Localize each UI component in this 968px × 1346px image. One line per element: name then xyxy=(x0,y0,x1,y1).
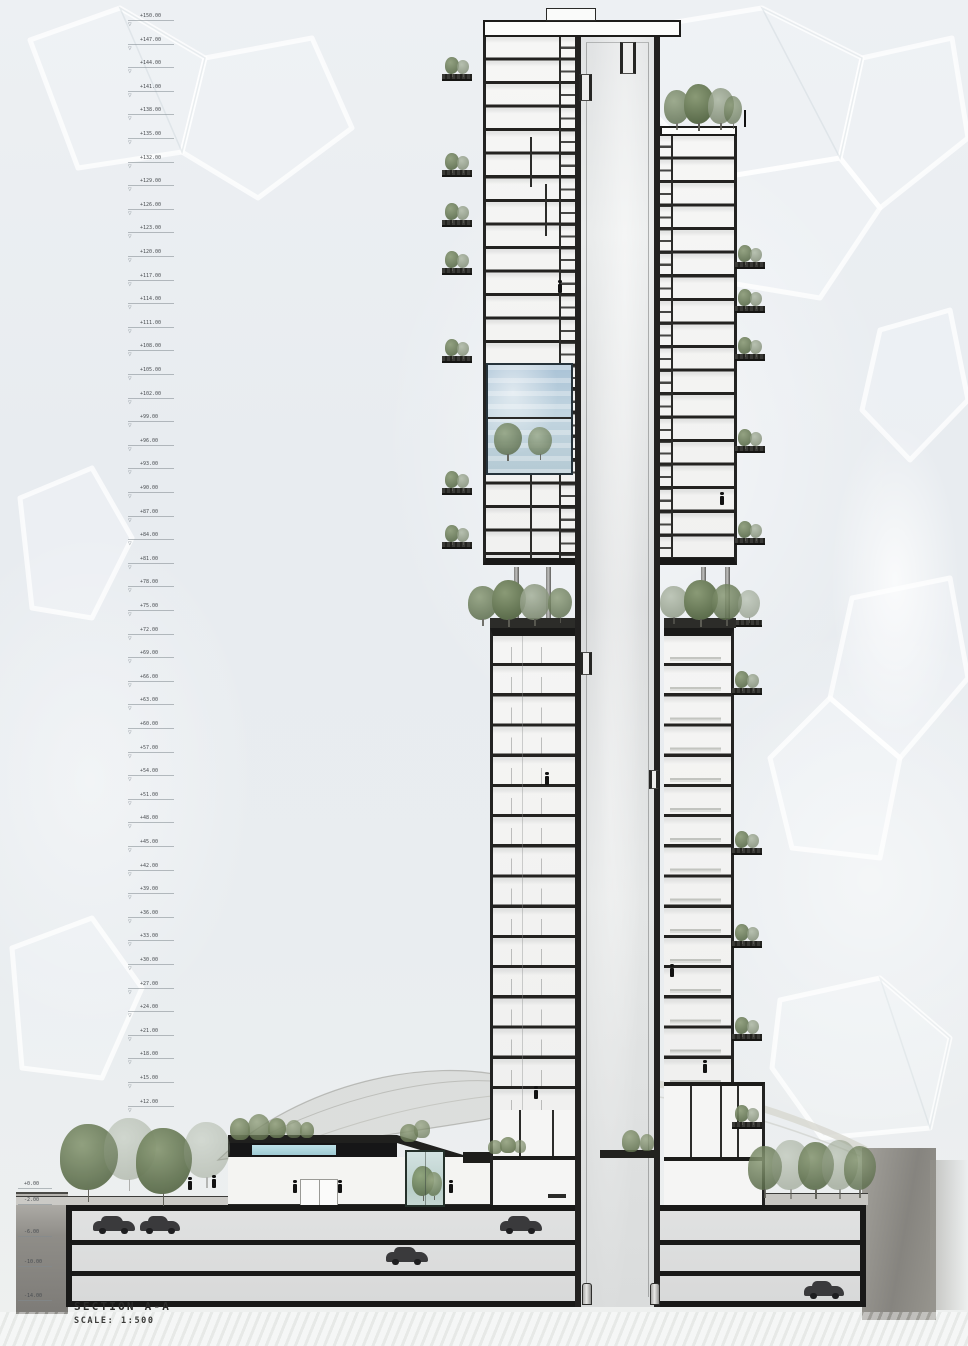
triangle-down-icon: ▽ xyxy=(128,470,132,476)
elevation-label: +123.00 xyxy=(140,226,174,231)
triangle-down-icon: ▽ xyxy=(128,754,132,760)
elevation-label: +33.00 xyxy=(140,934,174,939)
elevation-label: +99.00 xyxy=(140,415,174,420)
datum-leader-line xyxy=(18,1266,52,1267)
person-icon xyxy=(720,496,724,505)
elevation-marker: +12.00▽ xyxy=(128,1100,174,1107)
elevation-label: +48.00 xyxy=(140,816,174,821)
elevation-marker: +75.00▽ xyxy=(128,604,174,611)
datum-label: -6.00 xyxy=(24,1230,52,1235)
elevation-leader-line xyxy=(128,1106,174,1107)
atrium-mullion xyxy=(425,1152,426,1205)
tower-upper-right-wing xyxy=(660,136,737,565)
elevation-label: +87.00 xyxy=(140,510,174,515)
triangle-down-icon: ▽ xyxy=(128,234,132,240)
triangle-down-icon: ▽ xyxy=(128,848,132,854)
elevation-label: +81.00 xyxy=(140,557,174,562)
triangle-down-icon: ▽ xyxy=(128,400,132,406)
triangle-down-icon: ▽ xyxy=(128,612,132,618)
triangle-down-icon: ▽ xyxy=(128,494,132,500)
elevation-leader-line xyxy=(128,539,174,540)
elevator-icon xyxy=(649,770,659,789)
triangle-down-icon: ▽ xyxy=(128,164,132,170)
elevation-label: +78.00 xyxy=(140,580,174,585)
elevation-leader-line xyxy=(128,374,174,375)
elevation-leader-line xyxy=(128,1058,174,1059)
sky-garden-floor-line xyxy=(488,417,571,419)
person-icon xyxy=(212,1179,216,1188)
triangle-down-icon: ▽ xyxy=(128,46,132,52)
elevation-label: +69.00 xyxy=(140,651,174,656)
door-outline-hints xyxy=(541,636,542,1110)
elevation-leader-line xyxy=(128,870,174,871)
elevation-marker: +135.00▽ xyxy=(128,132,174,139)
elevation-leader-line xyxy=(128,917,174,918)
elevation-label: +132.00 xyxy=(140,156,174,161)
elevation-label: +21.00 xyxy=(140,1029,174,1034)
balcony-planter xyxy=(442,542,472,549)
tower-lower-left-block xyxy=(490,628,575,1110)
elevation-marker: +117.00▽ xyxy=(128,274,174,281)
elevation-marker: +84.00▽ xyxy=(128,533,174,540)
roof-antenna xyxy=(744,110,746,127)
elevation-leader-line xyxy=(128,327,174,328)
datum-label: -2.00 xyxy=(24,1198,52,1203)
balcony-planter xyxy=(732,848,762,855)
shrub-icon xyxy=(230,1118,250,1140)
podium-roof-band xyxy=(228,1143,397,1157)
balcony-planter xyxy=(732,1122,762,1129)
elevation-label: +102.00 xyxy=(140,392,174,397)
elevation-label: +150.00 xyxy=(140,14,174,19)
balcony-planter xyxy=(442,488,472,495)
person-icon xyxy=(338,1184,342,1193)
balcony-planter xyxy=(735,262,765,269)
elevation-leader-line xyxy=(128,846,174,847)
drawing-title: SECTION A-A xyxy=(74,1300,171,1313)
elevation-marker: +21.00▽ xyxy=(128,1029,174,1036)
triangle-down-icon: ▽ xyxy=(128,447,132,453)
elevation-label: +15.00 xyxy=(140,1076,174,1081)
elevation-label: +108.00 xyxy=(140,344,174,349)
elevation-marker: +108.00▽ xyxy=(128,344,174,351)
roof-bulkhead xyxy=(546,8,596,21)
triangle-down-icon: ▽ xyxy=(128,683,132,689)
shrub-icon xyxy=(622,1130,640,1152)
datum-leader-line xyxy=(18,1204,52,1205)
elevation-leader-line xyxy=(128,1011,174,1012)
car-icon xyxy=(386,1252,428,1262)
balcony-planter xyxy=(442,356,472,363)
elevation-marker: +24.00▽ xyxy=(128,1005,174,1012)
base-partition xyxy=(690,1086,692,1157)
tower-lower-right-block xyxy=(664,628,734,1082)
block-partition xyxy=(522,636,523,1110)
elevation-leader-line xyxy=(128,20,174,21)
elevation-label: +117.00 xyxy=(140,274,174,279)
shrub-icon xyxy=(300,1122,314,1138)
elevation-label: +147.00 xyxy=(140,38,174,43)
person-icon xyxy=(449,1184,453,1193)
atrium-glass xyxy=(405,1150,445,1207)
elevation-leader-line xyxy=(128,280,174,281)
triangle-down-icon: ▽ xyxy=(128,69,132,75)
base-partition xyxy=(720,1086,722,1157)
elevation-leader-line xyxy=(128,964,174,965)
balcony-planter xyxy=(442,74,472,81)
shrub-icon xyxy=(268,1118,286,1138)
elevation-marker: +129.00▽ xyxy=(128,179,174,186)
balcony-planter xyxy=(735,354,765,361)
triangle-down-icon: ▽ xyxy=(128,22,132,28)
elevation-label: +129.00 xyxy=(140,179,174,184)
furniture-sketch-hints xyxy=(670,636,721,1082)
elevation-leader-line xyxy=(128,752,174,753)
person-icon xyxy=(558,284,562,293)
triangle-down-icon: ▽ xyxy=(128,1013,132,1019)
balcony-planter xyxy=(735,446,765,453)
elevation-leader-line xyxy=(128,563,174,564)
elevation-leader-line xyxy=(128,586,174,587)
elevation-marker: +81.00▽ xyxy=(128,557,174,564)
elevator-icon xyxy=(620,42,636,74)
shrub-icon xyxy=(640,1134,654,1151)
elevation-leader-line xyxy=(128,681,174,682)
elevation-leader-line xyxy=(128,67,174,68)
tower-base-right xyxy=(664,1082,765,1205)
elevator-icon xyxy=(579,74,592,101)
triangle-down-icon: ▽ xyxy=(128,824,132,830)
datum-leader-line xyxy=(18,1300,52,1301)
balcony-planter xyxy=(442,170,472,177)
core-adjacent-shaft-strip xyxy=(660,136,673,558)
balcony-planter xyxy=(442,268,472,275)
elevation-label: +30.00 xyxy=(140,958,174,963)
elevator-icon xyxy=(580,652,592,675)
datum-label: -14.00 xyxy=(24,1294,52,1299)
person-icon xyxy=(545,776,549,785)
datum-leader-line xyxy=(18,1188,52,1189)
elevation-label: +66.00 xyxy=(140,675,174,680)
balcony-planter xyxy=(735,306,765,313)
elevation-marker: +48.00▽ xyxy=(128,816,174,823)
elevation-marker: +126.00▽ xyxy=(128,203,174,210)
elevation-leader-line xyxy=(128,303,174,304)
elevation-label: +12.00 xyxy=(140,1100,174,1105)
architectural-section-canvas: +150.00▽+147.00▽+144.00▽+141.00▽+138.00▽… xyxy=(0,0,968,1346)
elevation-marker: +30.00▽ xyxy=(128,958,174,965)
triangle-down-icon: ▽ xyxy=(128,93,132,99)
core-inner-outline xyxy=(586,42,649,1297)
roof-parapet xyxy=(483,20,681,37)
elevator-buffer xyxy=(650,1283,660,1305)
elevation-marker: +60.00▽ xyxy=(128,722,174,729)
elevation-label: +90.00 xyxy=(140,486,174,491)
elevation-leader-line xyxy=(128,775,174,776)
title-block: SECTION A-A SCALE: 1:500 xyxy=(74,1300,171,1326)
triangle-down-icon: ▽ xyxy=(128,211,132,217)
elevation-marker: +54.00▽ xyxy=(128,769,174,776)
elevation-marker: +141.00▽ xyxy=(128,85,174,92)
triangle-down-icon: ▽ xyxy=(128,730,132,736)
elevation-marker: +66.00▽ xyxy=(128,675,174,682)
elevation-label: +57.00 xyxy=(140,746,174,751)
triangle-down-icon: ▽ xyxy=(128,1060,132,1066)
elevation-leader-line xyxy=(128,209,174,210)
triangle-down-icon: ▽ xyxy=(128,116,132,122)
balcony-planter xyxy=(732,941,762,948)
elevation-marker: +39.00▽ xyxy=(128,887,174,894)
elevation-label: +135.00 xyxy=(140,132,174,137)
elevation-marker: +150.00▽ xyxy=(128,14,174,21)
elevation-label: +114.00 xyxy=(140,297,174,302)
elevation-label: +42.00 xyxy=(140,864,174,869)
elevation-marker: +15.00▽ xyxy=(128,1076,174,1083)
triangle-down-icon: ▽ xyxy=(128,541,132,547)
triangle-down-icon: ▽ xyxy=(128,777,132,783)
door-outline-hints xyxy=(511,636,512,1110)
elevation-marker: +93.00▽ xyxy=(128,462,174,469)
balcony-planter xyxy=(732,1034,762,1041)
triangle-down-icon: ▽ xyxy=(128,423,132,429)
elevation-leader-line xyxy=(128,445,174,446)
datum-marker: -14.00 xyxy=(18,1294,52,1301)
wing-partition xyxy=(545,184,547,236)
triangle-down-icon: ▽ xyxy=(128,872,132,878)
elevation-leader-line xyxy=(128,822,174,823)
elevation-label: +60.00 xyxy=(140,722,174,727)
tower-upper-left-wing xyxy=(483,37,575,565)
elevation-marker: +33.00▽ xyxy=(128,934,174,941)
triangle-down-icon: ▽ xyxy=(128,258,132,264)
elevation-leader-line xyxy=(128,657,174,658)
elevation-marker: +120.00▽ xyxy=(128,250,174,257)
elevation-marker: +96.00▽ xyxy=(128,439,174,446)
elevation-marker: +87.00▽ xyxy=(128,510,174,517)
elevation-marker: +90.00▽ xyxy=(128,486,174,493)
elevation-marker: +123.00▽ xyxy=(128,226,174,233)
podium-pool xyxy=(252,1145,336,1155)
elevation-leader-line xyxy=(128,398,174,399)
elevation-leader-line xyxy=(128,1035,174,1036)
base-slab xyxy=(493,1156,575,1160)
triangle-down-icon: ▽ xyxy=(128,942,132,948)
elevation-label: +138.00 xyxy=(140,108,174,113)
elevation-leader-line xyxy=(128,492,174,493)
shrub-icon xyxy=(514,1140,526,1153)
elevation-marker: +51.00▽ xyxy=(128,793,174,800)
elevation-marker: +57.00▽ xyxy=(128,746,174,753)
elevation-label: +84.00 xyxy=(140,533,174,538)
datum-marker: -10.00 xyxy=(18,1260,52,1267)
elevation-label: +126.00 xyxy=(140,203,174,208)
elevation-marker: +105.00▽ xyxy=(128,368,174,375)
elevation-label: +144.00 xyxy=(140,61,174,66)
elevation-leader-line xyxy=(128,704,174,705)
datum-label: -10.00 xyxy=(24,1260,52,1265)
elevation-leader-line xyxy=(128,610,174,611)
elevation-marker: +102.00▽ xyxy=(128,392,174,399)
elevation-marker: +69.00▽ xyxy=(128,651,174,658)
car-icon xyxy=(804,1286,844,1296)
balcony-planter xyxy=(442,220,472,227)
datum-marker: +0.00 xyxy=(18,1182,52,1189)
elevation-label: +105.00 xyxy=(140,368,174,373)
triangle-down-icon: ▽ xyxy=(128,282,132,288)
person-icon xyxy=(670,968,674,977)
elevation-marker: +63.00▽ xyxy=(128,698,174,705)
elevation-leader-line xyxy=(128,940,174,941)
elevation-leader-line xyxy=(128,162,174,163)
triangle-down-icon: ▽ xyxy=(128,588,132,594)
person-icon xyxy=(188,1181,192,1190)
triangle-down-icon: ▽ xyxy=(128,706,132,712)
elevation-marker: +42.00▽ xyxy=(128,864,174,871)
triangle-down-icon: ▽ xyxy=(128,659,132,665)
elevation-leader-line xyxy=(128,893,174,894)
sky-garden-glass xyxy=(486,363,573,475)
elevation-leader-line xyxy=(128,138,174,139)
balcony-planter xyxy=(732,688,762,695)
datum-marker: -6.00 xyxy=(18,1230,52,1237)
tower-base-left xyxy=(490,1110,575,1205)
triangle-down-icon: ▽ xyxy=(128,518,132,524)
elevation-label: +96.00 xyxy=(140,439,174,444)
triangle-down-icon: ▽ xyxy=(128,352,132,358)
elevation-leader-line xyxy=(128,185,174,186)
car-icon xyxy=(500,1221,542,1231)
elevation-label: +111.00 xyxy=(140,321,174,326)
shrub-icon xyxy=(414,1120,430,1138)
elevation-label: +72.00 xyxy=(140,628,174,633)
elevation-marker: +114.00▽ xyxy=(128,297,174,304)
elevation-label: +75.00 xyxy=(140,604,174,609)
elevation-label: +141.00 xyxy=(140,85,174,90)
person-icon xyxy=(703,1064,707,1073)
triangle-down-icon: ▽ xyxy=(128,801,132,807)
triangle-down-icon: ▽ xyxy=(128,1108,132,1114)
triangle-down-icon: ▽ xyxy=(128,636,132,642)
elevation-marker: +144.00▽ xyxy=(128,61,174,68)
elevation-leader-line xyxy=(128,421,174,422)
triangle-down-icon: ▽ xyxy=(128,376,132,382)
datum-leader-line xyxy=(18,1236,52,1237)
triangle-down-icon: ▽ xyxy=(128,895,132,901)
table-chairs-icon xyxy=(548,1194,566,1198)
base-slab xyxy=(664,1157,762,1161)
elevation-marker: +45.00▽ xyxy=(128,840,174,847)
elevation-leader-line xyxy=(128,468,174,469)
elevation-leader-line xyxy=(128,728,174,729)
elevation-leader-line xyxy=(128,516,174,517)
elevation-label: +27.00 xyxy=(140,982,174,987)
elevation-label: +120.00 xyxy=(140,250,174,255)
elevation-leader-line xyxy=(128,114,174,115)
elevation-marker: +27.00▽ xyxy=(128,982,174,989)
elevation-label: +63.00 xyxy=(140,698,174,703)
elevation-marker: +72.00▽ xyxy=(128,628,174,635)
triangle-down-icon: ▽ xyxy=(128,140,132,146)
elevation-marker: +36.00▽ xyxy=(128,911,174,918)
podium-entry-door-split xyxy=(319,1179,320,1205)
sky-garden-tree-icon xyxy=(494,423,522,455)
datum-label: +0.00 xyxy=(24,1182,52,1187)
triangle-down-icon: ▽ xyxy=(128,565,132,571)
triangle-down-icon: ▽ xyxy=(128,305,132,311)
elevation-leader-line xyxy=(128,1082,174,1083)
elevation-marker: +78.00▽ xyxy=(128,580,174,587)
elevation-marker: +132.00▽ xyxy=(128,156,174,163)
elevation-label: +51.00 xyxy=(140,793,174,798)
elevation-marker: +138.00▽ xyxy=(128,108,174,115)
elevation-label: +18.00 xyxy=(140,1052,174,1057)
car-icon xyxy=(140,1221,180,1231)
elevation-label: +36.00 xyxy=(140,911,174,916)
elevation-label: +39.00 xyxy=(140,887,174,892)
elevation-marker: +111.00▽ xyxy=(128,321,174,328)
triangle-down-icon: ▽ xyxy=(128,1037,132,1043)
elevation-marker: +147.00▽ xyxy=(128,38,174,45)
elevation-leader-line xyxy=(128,634,174,635)
datum-marker: -2.00 xyxy=(18,1198,52,1205)
drawing-scale: SCALE: 1:500 xyxy=(74,1316,171,1326)
elevation-leader-line xyxy=(128,232,174,233)
elevation-leader-line xyxy=(128,799,174,800)
elevation-leader-line xyxy=(128,988,174,989)
elevation-leader-line xyxy=(128,256,174,257)
balcony-planter xyxy=(735,538,765,545)
car-icon xyxy=(93,1221,135,1231)
elevation-label: +54.00 xyxy=(140,769,174,774)
triangle-down-icon: ▽ xyxy=(128,990,132,996)
sky-garden-tree-icon xyxy=(528,427,552,455)
triangle-down-icon: ▽ xyxy=(128,329,132,335)
core-adjacent-shaft-strip xyxy=(559,37,575,558)
triangle-down-icon: ▽ xyxy=(128,1084,132,1090)
wing-partition xyxy=(530,137,532,187)
elevator-buffer xyxy=(582,1283,592,1305)
triangle-down-icon: ▽ xyxy=(128,919,132,925)
atrium-tree-icon xyxy=(426,1172,442,1196)
person-icon xyxy=(534,1090,538,1099)
shrub-icon xyxy=(248,1114,270,1140)
triangle-down-icon: ▽ xyxy=(128,187,132,193)
elevation-label: +93.00 xyxy=(140,462,174,467)
elevation-label: +45.00 xyxy=(140,840,174,845)
elevation-marker: +99.00▽ xyxy=(128,415,174,422)
elevation-leader-line xyxy=(128,91,174,92)
elevation-leader-line xyxy=(128,44,174,45)
elevation-marker: +18.00▽ xyxy=(128,1052,174,1059)
person-icon xyxy=(293,1184,297,1193)
elevation-label: +24.00 xyxy=(140,1005,174,1010)
base-partition xyxy=(552,1110,554,1156)
elevation-leader-line xyxy=(128,350,174,351)
triangle-down-icon: ▽ xyxy=(128,966,132,972)
wing-partition xyxy=(530,467,532,558)
